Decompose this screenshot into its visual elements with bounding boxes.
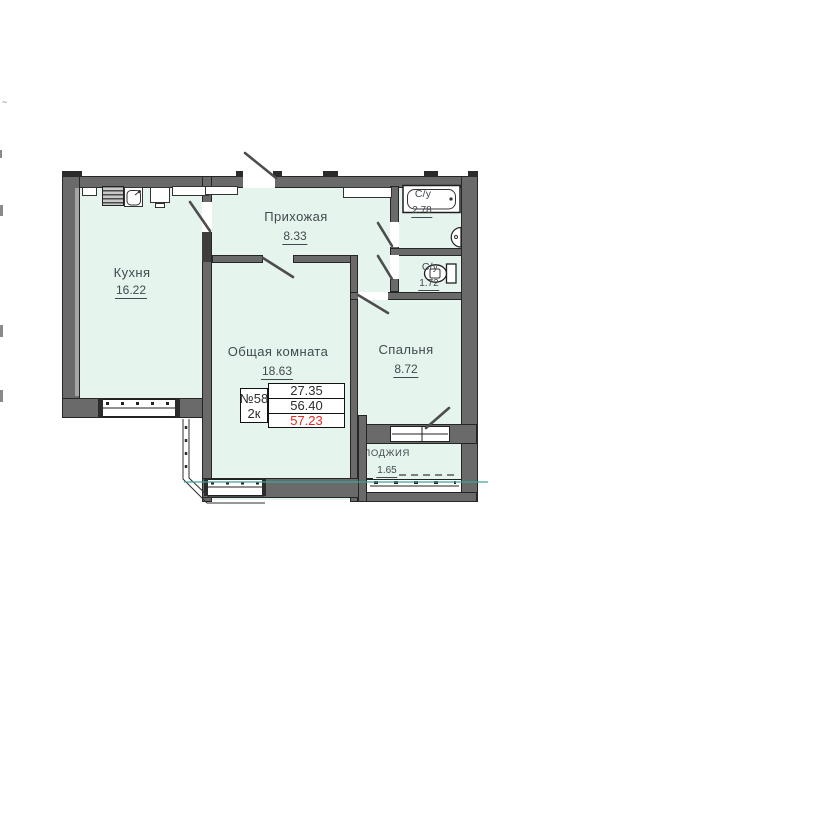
stove-icon — [102, 186, 124, 206]
hallway-closet-right — [343, 187, 392, 198]
hallway-area: 8.33 — [282, 229, 307, 245]
kitchen-appliance — [150, 187, 170, 203]
hallway-closet-left — [205, 186, 238, 195]
unit-areas-cell: 27.35 56.40 57.23 — [268, 383, 345, 428]
window-cap — [175, 399, 180, 417]
bedroom-label: Спальня — [378, 342, 433, 357]
wall-cap — [236, 171, 243, 177]
bathroom-label: С/у — [415, 188, 431, 200]
bedroom-door-opening — [358, 292, 388, 300]
main-floor — [206, 182, 472, 500]
window-cap — [204, 479, 208, 496]
bedroom-loggia-window — [390, 426, 450, 442]
outer-right-wall — [461, 176, 478, 502]
hallway-bottom-wall-left — [212, 255, 263, 263]
toilet-area: 1.72 — [418, 278, 439, 291]
window-cap — [98, 399, 103, 417]
bedroom-area: 8.72 — [393, 362, 418, 378]
kitchen-area: 16.22 — [115, 283, 147, 299]
unit-total-area: 56.40 — [269, 399, 344, 414]
wall-cap — [323, 171, 338, 177]
unit-area-with-balcony: 57.23 — [269, 414, 344, 428]
edge-tick-mark: ~ — [2, 97, 7, 107]
hallway-label: Прихожая — [264, 209, 327, 224]
unit-number: №58 — [240, 391, 268, 406]
entrance-door-opening — [243, 176, 275, 188]
unit-type: 2к — [248, 406, 261, 421]
edge-sliver — [0, 325, 3, 337]
bathroom-area: 2.78 — [411, 205, 432, 218]
kitchen-window — [98, 399, 180, 417]
edge-sliver — [0, 150, 2, 158]
living-room-area: 18.63 — [261, 364, 293, 380]
left-wall-lining — [75, 188, 79, 396]
unit-info-table: №58 2к 27.35 56.40 57.23 — [240, 383, 345, 428]
window-cap — [262, 479, 266, 496]
loggia-window — [366, 479, 462, 493]
edge-sliver — [0, 205, 3, 216]
bathroom-door-opening — [390, 222, 399, 247]
wall-cap — [424, 171, 438, 177]
toilet-door-opening — [390, 255, 399, 279]
living-window — [204, 479, 266, 496]
living-room-label: Общая комната — [228, 344, 329, 359]
kitchen-door-opening — [202, 202, 212, 232]
wall-cap — [468, 171, 478, 177]
unit-living-area: 27.35 — [269, 384, 344, 399]
edge-sliver — [0, 390, 3, 402]
hallway-bottom-wall-right — [293, 255, 357, 263]
kitchen-door-leaf — [202, 232, 211, 262]
kitchen-sink-icon — [124, 187, 143, 207]
loggia-label: ЛОДЖИЯ — [364, 448, 410, 459]
unit-id-cell: №58 2к — [240, 388, 268, 423]
kitchen-label: Кухня — [114, 265, 151, 280]
kitchen-appliance-tab — [155, 203, 165, 208]
loggia-area: 1.65 — [376, 465, 397, 478]
wall-cap — [62, 171, 82, 177]
kitchen-counter — [172, 186, 209, 196]
toilet-label: С/у — [422, 261, 438, 273]
loggia-bottom-wall — [366, 492, 477, 502]
kitchen-cabinet — [82, 187, 97, 196]
floorplan-canvas: ~ — [0, 0, 828, 828]
